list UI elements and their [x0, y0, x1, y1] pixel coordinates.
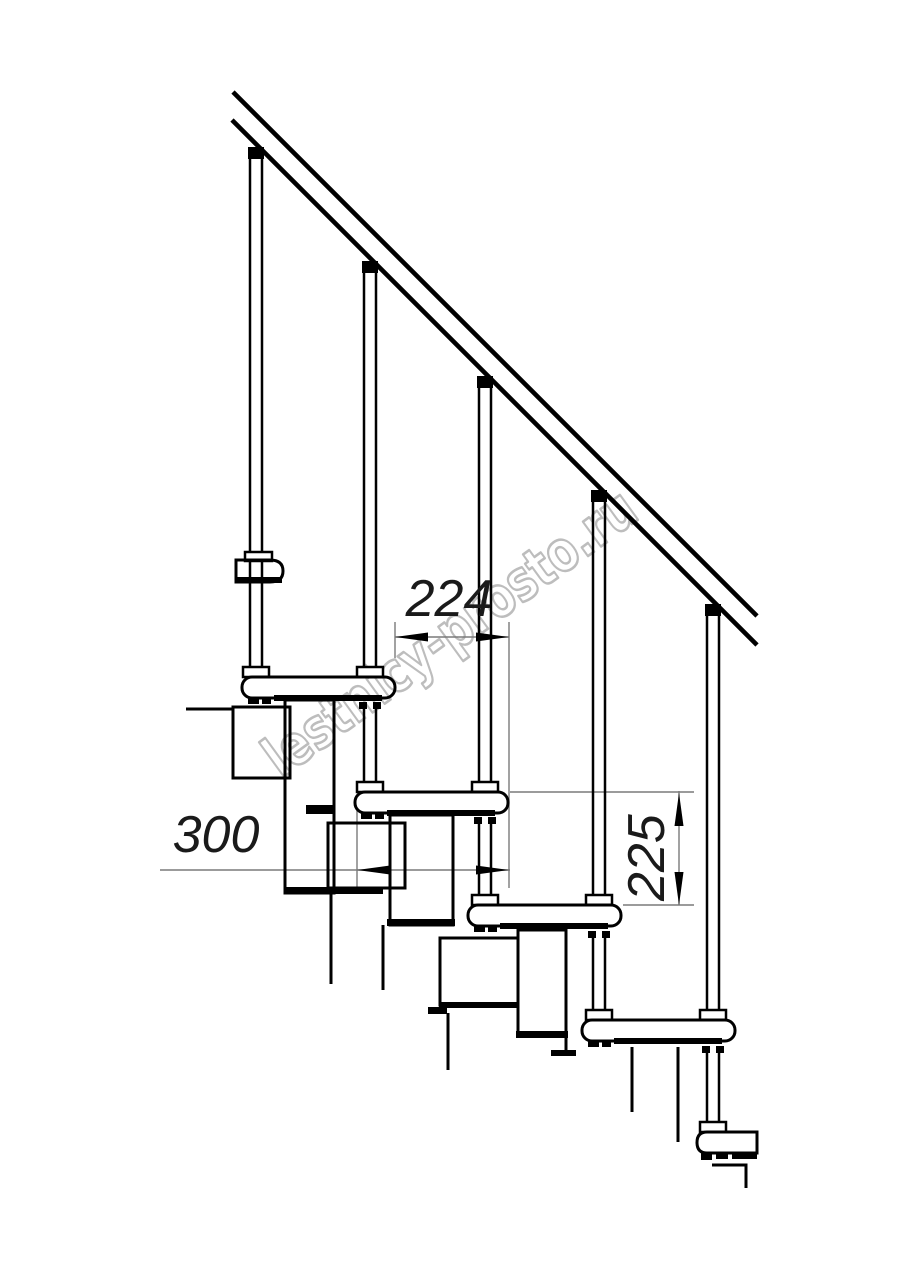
tread-clamp-plate [732, 1152, 757, 1159]
module-base-plate [285, 887, 383, 894]
bracket-base [237, 577, 282, 583]
dimension-label-tread-depth: 300 [173, 806, 260, 864]
dimension-label-step-run: 224 [405, 570, 493, 628]
module-clamp [551, 1050, 576, 1056]
module-base-plate [387, 919, 455, 926]
tread-clamp-plate [387, 810, 495, 816]
staircase-drawing-canvas: lestnicy-prosto.ru lestnicy-prosto.ru [0, 0, 914, 1280]
tread-clamp-plate [500, 923, 608, 929]
module-base-plate [516, 1031, 568, 1038]
tread-clamp-plate [614, 1038, 722, 1044]
tread-clamp-plate [274, 695, 382, 701]
module-clamp [306, 805, 334, 814]
module-clamp [428, 1007, 447, 1014]
dimension-label-step-rise: 225 [618, 813, 676, 902]
staircase-technical-drawing: lestnicy-prosto.ru lestnicy-prosto.ru [0, 0, 914, 1280]
module-base-plate [439, 1002, 519, 1008]
